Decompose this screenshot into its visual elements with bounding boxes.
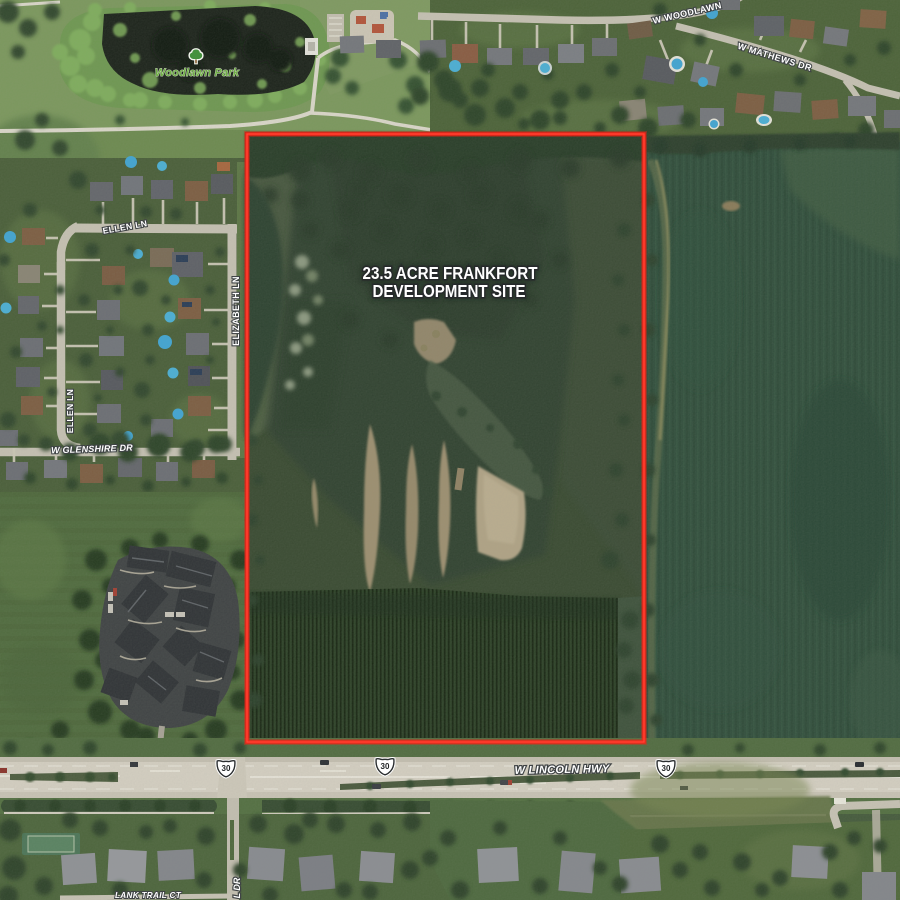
svg-text:23.5 ACRE FRANKFORT: 23.5 ACRE FRANKFORT xyxy=(363,263,538,283)
svg-text:ELLEN LN: ELLEN LN xyxy=(65,389,75,433)
svg-text:30: 30 xyxy=(222,764,231,773)
svg-text:L DR: L DR xyxy=(232,877,242,898)
svg-text:DEVELOPMENT SITE: DEVELOPMENT SITE xyxy=(373,281,526,301)
svg-text:30: 30 xyxy=(662,764,671,773)
svg-text:LANK TRAIL CT: LANK TRAIL CT xyxy=(115,891,182,900)
svg-text:ELIZABETH LN: ELIZABETH LN xyxy=(231,276,241,346)
svg-text:30: 30 xyxy=(381,762,390,771)
svg-text:W LINCOLN HWY: W LINCOLN HWY xyxy=(514,763,610,777)
svg-text:Woodlawn Park: Woodlawn Park xyxy=(155,67,240,79)
